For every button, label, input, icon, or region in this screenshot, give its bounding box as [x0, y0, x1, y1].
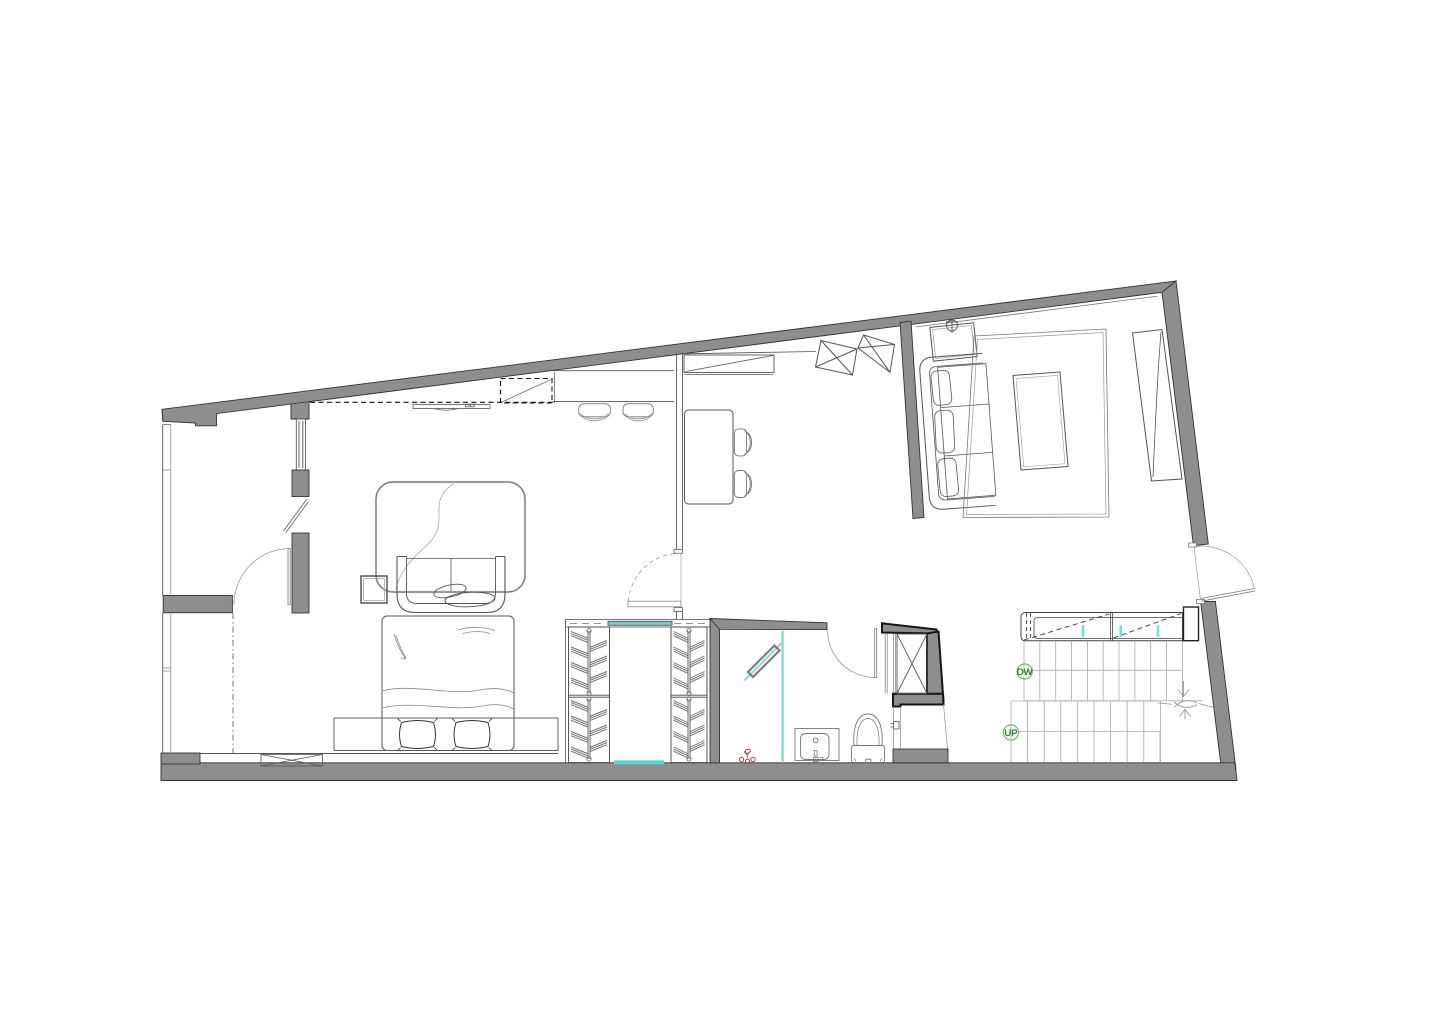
svg-text:DW: DW [1017, 667, 1033, 678]
svg-text:UP: UP [1004, 728, 1017, 739]
